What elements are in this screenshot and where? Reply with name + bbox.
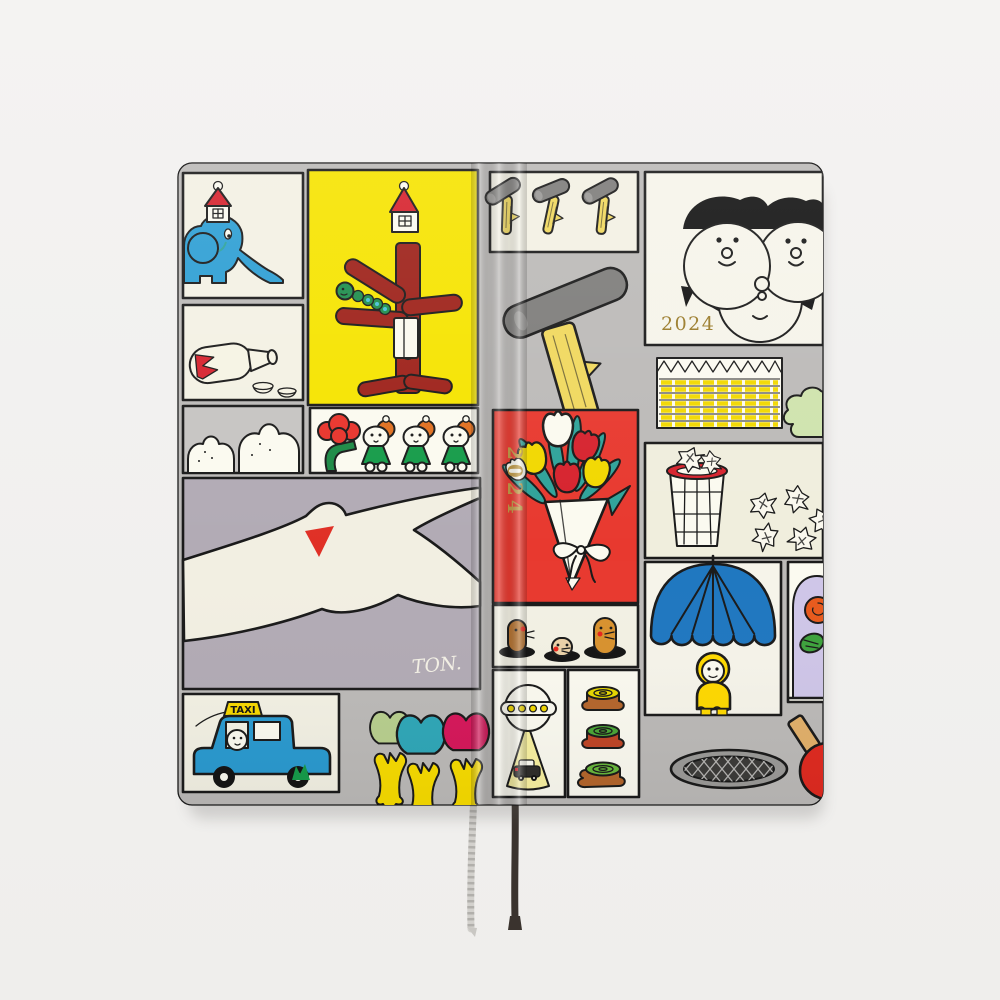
product-photo-open-planner: TON. TAXI (0, 0, 1000, 1000)
spine-fold-shading (471, 163, 527, 805)
planner-illustration: TON. TAXI (0, 0, 1000, 1000)
notebook-cover: TON. TAXI (178, 163, 856, 819)
